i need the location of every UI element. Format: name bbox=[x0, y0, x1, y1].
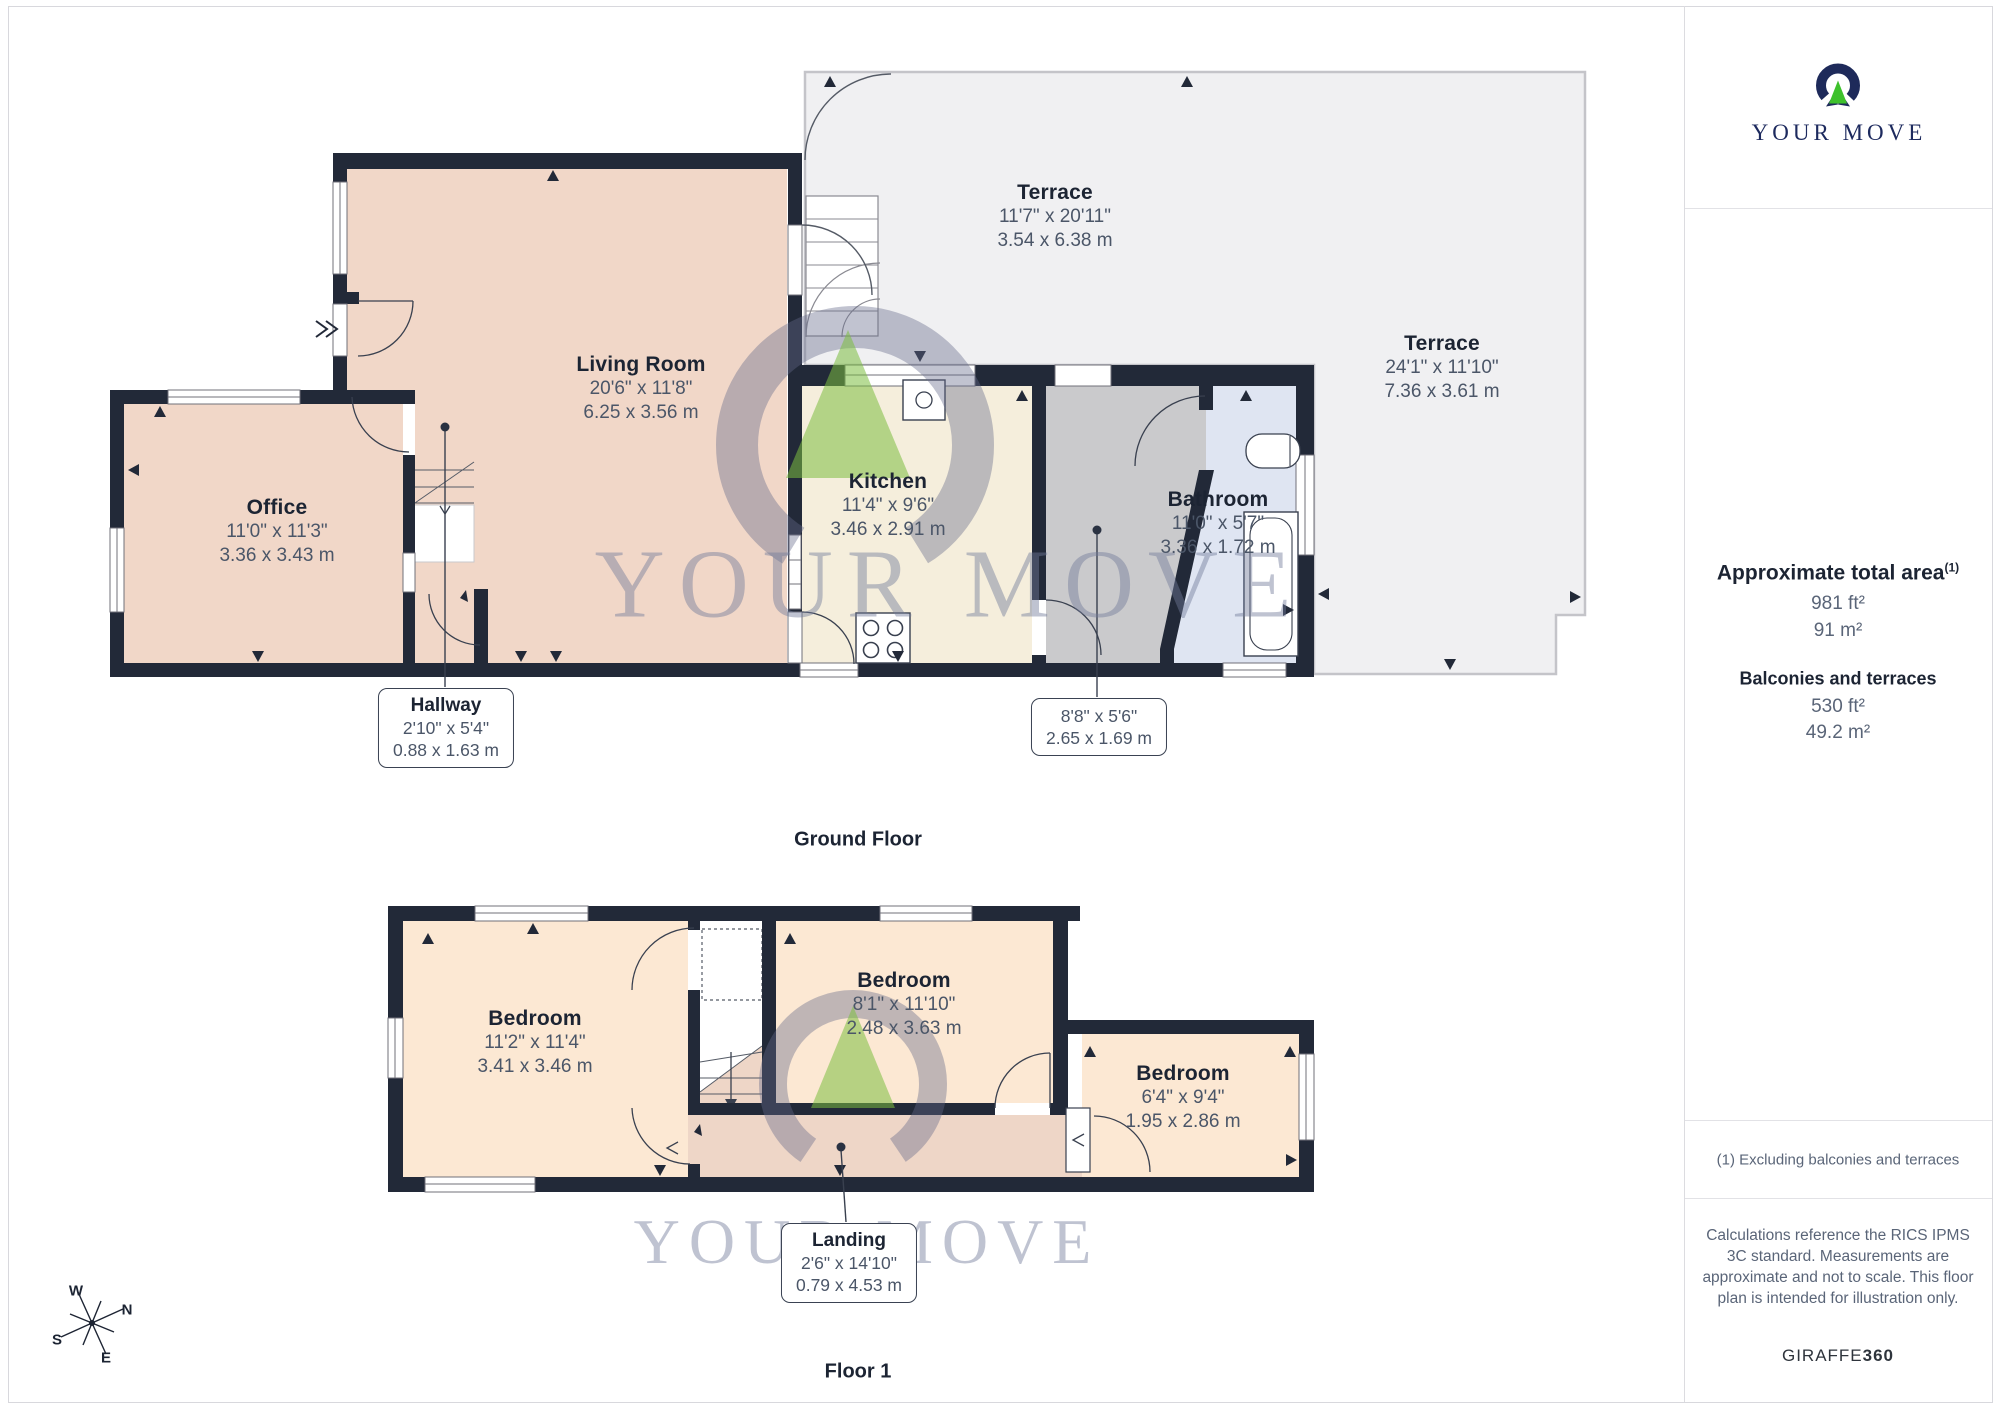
room-name: Office bbox=[219, 496, 334, 520]
room-dims-metric: 3.54 x 6.38 m bbox=[997, 229, 1112, 253]
room-label-terrace-2: Terrace 24'1" x 11'10" 7.36 x 3.61 m bbox=[1384, 332, 1499, 404]
balconies-ft: 530 ft² bbox=[1811, 696, 1865, 718]
giraffe360-credit-regular: GIRAFFE bbox=[1782, 1346, 1863, 1365]
room-name: Bedroom bbox=[1125, 1062, 1240, 1086]
room-dims-imperial: 8'1" x 11'10" bbox=[846, 993, 961, 1017]
total-area-heading: Approximate total area(1) bbox=[1717, 561, 1959, 586]
balconies-heading: Balconies and terraces bbox=[1739, 669, 1936, 690]
callout-name: Hallway bbox=[393, 695, 499, 717]
room-name: Kitchen bbox=[830, 470, 945, 494]
room-label-office: Office 11'0" x 11'3" 3.36 x 3.43 m bbox=[219, 496, 334, 568]
room-label-terrace-1: Terrace 11'7" x 20'11" 3.54 x 6.38 m bbox=[997, 181, 1112, 253]
callout-dims-metric: 0.79 x 4.53 m bbox=[796, 1274, 902, 1296]
room-name: Bedroom bbox=[477, 1007, 592, 1031]
total-area-m: 91 m² bbox=[1814, 620, 1863, 642]
floor-title-1: Floor 1 bbox=[825, 1361, 892, 1384]
giraffe360-credit: GIRAFFE360 bbox=[1782, 1346, 1894, 1366]
footnote: (1) Excluding balconies and terraces bbox=[1717, 1152, 1960, 1169]
callout-hallway: Hallway 2'10" x 5'4" 0.88 x 1.63 m bbox=[378, 688, 514, 768]
room-dims-metric: 6.25 x 3.56 m bbox=[576, 401, 705, 425]
room-dims-imperial: 11'2" x 11'4" bbox=[477, 1031, 592, 1055]
your-move-logo-text: YOUR MOVE bbox=[1752, 120, 1927, 146]
room-label-bedroom-3: Bedroom 6'4" x 9'4" 1.95 x 2.86 m bbox=[1125, 1062, 1240, 1134]
room-name: Bathroom bbox=[1160, 488, 1275, 512]
balconies-m: 49.2 m² bbox=[1806, 722, 1870, 744]
room-dims-imperial: 11'0" x 5'7" bbox=[1160, 512, 1275, 536]
cupboard-icon bbox=[1066, 1108, 1090, 1172]
room-dims-imperial: 11'0" x 11'3" bbox=[219, 520, 334, 544]
room-dims-metric: 3.36 x 1.72 m bbox=[1160, 536, 1275, 560]
giraffe360-credit-bold: 360 bbox=[1863, 1346, 1894, 1365]
callout-dims-imperial: 2'6" x 14'10" bbox=[796, 1252, 902, 1274]
room-name: Living Room bbox=[576, 353, 705, 377]
compass-south-label: S bbox=[52, 1332, 62, 1349]
room-dims-imperial: 11'4" x 9'6" bbox=[830, 494, 945, 518]
compass-north-label: N bbox=[122, 1302, 133, 1319]
room-label-bedroom-1: Bedroom 11'2" x 11'4" 3.41 x 3.46 m bbox=[477, 1007, 592, 1079]
floorplan-page: YOUR MOVE YOUR MOVE Living Room 20'6" x … bbox=[0, 0, 2000, 1414]
room-name: Terrace bbox=[1384, 332, 1499, 356]
total-area-heading-text: Approximate total area bbox=[1717, 562, 1945, 585]
room-name: Terrace bbox=[997, 181, 1112, 205]
compass-rose bbox=[61, 1292, 123, 1354]
callout-dims-metric: 0.88 x 1.63 m bbox=[393, 739, 499, 761]
room-label-bedroom-2: Bedroom 8'1" x 11'10" 2.48 x 3.63 m bbox=[846, 969, 961, 1041]
callout-lobby: 8'8" x 5'6" 2.65 x 1.69 m bbox=[1031, 698, 1167, 756]
callout-landing: Landing 2'6" x 14'10" 0.79 x 4.53 m bbox=[781, 1223, 917, 1303]
room-dims-metric: 7.36 x 3.61 m bbox=[1384, 380, 1499, 404]
floor-title-ground: Ground Floor bbox=[794, 829, 922, 852]
room-dims-metric: 2.48 x 3.63 m bbox=[846, 1017, 961, 1041]
callout-dims-imperial: 2'10" x 5'4" bbox=[393, 717, 499, 739]
room-dims-metric: 1.95 x 2.86 m bbox=[1125, 1110, 1240, 1134]
total-area-ft: 981 ft² bbox=[1811, 593, 1865, 615]
room-dims-imperial: 24'1" x 11'10" bbox=[1384, 356, 1499, 380]
disclaimer: Calculations reference the RICS IPMS 3C … bbox=[1698, 1225, 1978, 1309]
room-name: Bedroom bbox=[846, 969, 961, 993]
room-dims-metric: 3.41 x 3.46 m bbox=[477, 1055, 592, 1079]
toilet-icon bbox=[1246, 434, 1300, 468]
callout-dims-imperial: 8'8" x 5'6" bbox=[1046, 705, 1152, 727]
room-dims-imperial: 20'6" x 11'8" bbox=[576, 377, 705, 401]
callout-name: Landing bbox=[796, 1230, 902, 1252]
room-dims-imperial: 11'7" x 20'11" bbox=[997, 205, 1112, 229]
your-move-logo-icon bbox=[1808, 61, 1868, 124]
compass-east-label: E bbox=[101, 1350, 111, 1367]
room-dims-imperial: 6'4" x 9'4" bbox=[1125, 1086, 1240, 1110]
compass-west-label: W bbox=[69, 1283, 83, 1300]
total-area-superscript: (1) bbox=[1944, 561, 1959, 575]
room-dims-metric: 3.36 x 3.43 m bbox=[219, 544, 334, 568]
callout-dims-metric: 2.65 x 1.69 m bbox=[1046, 727, 1152, 749]
room-dims-metric: 3.46 x 2.91 m bbox=[830, 518, 945, 542]
room-label-kitchen: Kitchen 11'4" x 9'6" 3.46 x 2.91 m bbox=[830, 470, 945, 542]
room-label-living-room: Living Room 20'6" x 11'8" 6.25 x 3.56 m bbox=[576, 353, 705, 425]
room-label-bathroom: Bathroom 11'0" x 5'7" 3.36 x 1.72 m bbox=[1160, 488, 1275, 560]
